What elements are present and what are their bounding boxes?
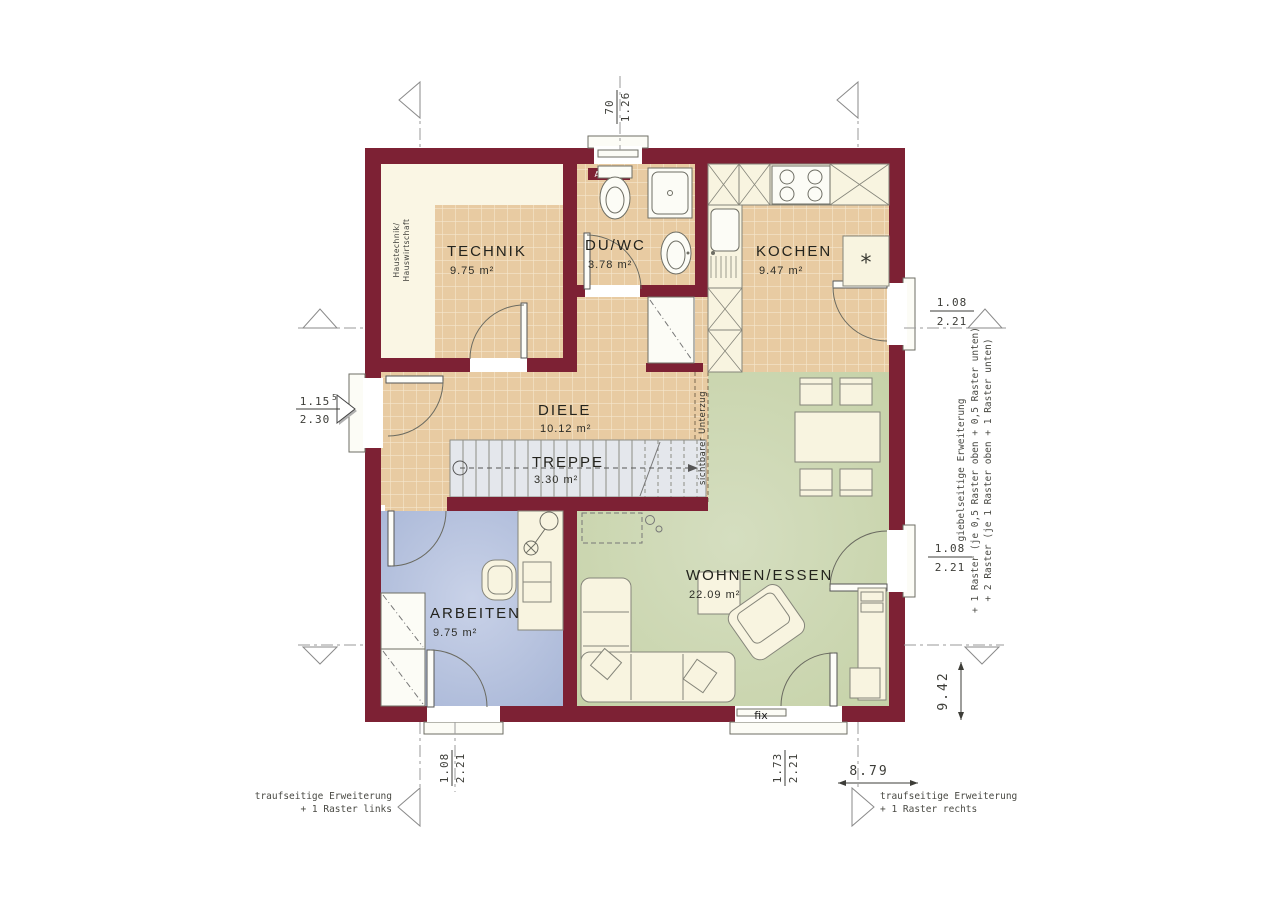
- washbasin: [661, 232, 691, 274]
- treppe-area: 3.30 m²: [534, 474, 578, 486]
- side-table: [850, 668, 880, 698]
- svg-text:Hauswirtschaft: Hauswirtschaft: [402, 219, 411, 282]
- svg-text:Haustechnik/: Haustechnik/: [392, 222, 401, 277]
- dim-bottom-right: 1.73 2.21: [771, 750, 800, 786]
- kitchen-counter: [708, 164, 889, 205]
- axis-flag-bottom-right: [852, 788, 874, 826]
- eaves-expansion-right: traufseitige Erweiterung + 1 Raster rech…: [880, 791, 1017, 815]
- kitchen-tall-cabinets: [708, 205, 742, 372]
- unterzug-label: sichtbarer Unterzug: [698, 391, 708, 485]
- office-wardrobe-2: [381, 649, 425, 706]
- haustechnik-note: Haustechnik/ Hauswirtschaft: [392, 219, 411, 282]
- diele-label: DIELE: [538, 402, 591, 419]
- svg-text:+ 1 Raster links: + 1 Raster links: [300, 804, 392, 815]
- fix-label: fix: [754, 709, 768, 722]
- svg-text:2.21: 2.21: [937, 315, 968, 328]
- kochen-area: 9.47 m²: [759, 265, 803, 277]
- stove: [772, 166, 830, 204]
- technik-area: 9.75 m²: [450, 265, 494, 277]
- svg-text:2.30: 2.30: [300, 413, 331, 426]
- dining-table: [795, 412, 880, 462]
- floorplan-drawing: Ablage: [0, 0, 1280, 905]
- svg-text:+ 1 Raster rechts: + 1 Raster rechts: [880, 804, 977, 815]
- toilet: [598, 166, 632, 219]
- dim-top-window: 70 1.26: [603, 90, 632, 124]
- svg-text:+ 2 Raster (je 1 Raster oben +: + 2 Raster (je 1 Raster oben + 1 Raster …: [983, 338, 994, 601]
- duwc-label: DU/WC: [585, 237, 646, 254]
- arbeiten-label: ARBEITEN: [430, 605, 521, 622]
- treppe-label: TREPPE: [532, 454, 604, 471]
- svg-text:1.08: 1.08: [937, 296, 968, 309]
- fridge-symbol: *: [859, 251, 872, 276]
- wohnen-label: WOHNEN/ESSEN: [686, 567, 833, 584]
- svg-text:1.26: 1.26: [619, 92, 632, 123]
- svg-text:70: 70: [603, 99, 616, 114]
- axis-flag-bottom-left: [398, 788, 420, 826]
- svg-text:1.08: 1.08: [935, 542, 966, 555]
- svg-text:1.73: 1.73: [771, 753, 784, 784]
- dim-total-width: 8.79: [838, 764, 918, 786]
- technik-tile-area: [435, 205, 563, 358]
- diele-area: 10.12 m²: [540, 423, 591, 435]
- duwc-area: 3.78 m²: [588, 259, 632, 271]
- kochen-label: KOCHEN: [756, 243, 832, 260]
- svg-text:2.21: 2.21: [935, 561, 966, 574]
- svg-text:2.21: 2.21: [787, 753, 800, 784]
- wohnen-area: 22.09 m²: [689, 589, 740, 601]
- wall-diele-arbeiten: [447, 497, 708, 511]
- svg-text:2.21: 2.21: [454, 753, 467, 784]
- dim-right-top: 1.08 2.21: [930, 296, 974, 328]
- wall-duwc-kochen: [695, 164, 708, 285]
- svg-text:1.08: 1.08: [438, 753, 451, 784]
- floorplan-page: Ablage: [0, 0, 1280, 905]
- svg-text:sichtbarer Unterzug: sichtbarer Unterzug: [698, 391, 708, 485]
- svg-text:traufseitige Erweiterung: traufseitige Erweiterung: [880, 791, 1017, 802]
- svg-text:8.79: 8.79: [849, 764, 888, 779]
- dim-total-depth: 9.42: [936, 662, 964, 720]
- svg-text:1.15: 1.15: [300, 395, 331, 408]
- svg-text:5: 5: [332, 393, 337, 402]
- shower: [648, 168, 692, 218]
- hall-wardrobe: [648, 297, 694, 363]
- dim-entrance: 1.15 5 2.30: [296, 393, 340, 426]
- svg-text:+ 1 Raster (je 0,5 Raster oben: + 1 Raster (je 0,5 Raster oben + 0,5 Ras…: [970, 327, 981, 613]
- arbeiten-area: 9.75 m²: [433, 627, 477, 639]
- dim-right-bottom: 1.08 2.21: [928, 542, 972, 574]
- dim-bottom-left: 1.08 2.21: [438, 750, 467, 786]
- fridge: *: [843, 236, 889, 286]
- technik-label: TECHNIK: [447, 243, 527, 260]
- svg-text:9.42: 9.42: [936, 671, 951, 710]
- eaves-expansion-left: traufseitige Erweiterung + 1 Raster link…: [255, 791, 392, 815]
- svg-text:traufseitige Erweiterung: traufseitige Erweiterung: [255, 791, 392, 802]
- svg-text:giebelseitige Erweiterung: giebelseitige Erweiterung: [956, 399, 967, 542]
- wall-technik-duwc: [563, 164, 577, 372]
- desk-counter: [518, 511, 563, 630]
- wall-arbeiten-wohnen: [563, 497, 577, 706]
